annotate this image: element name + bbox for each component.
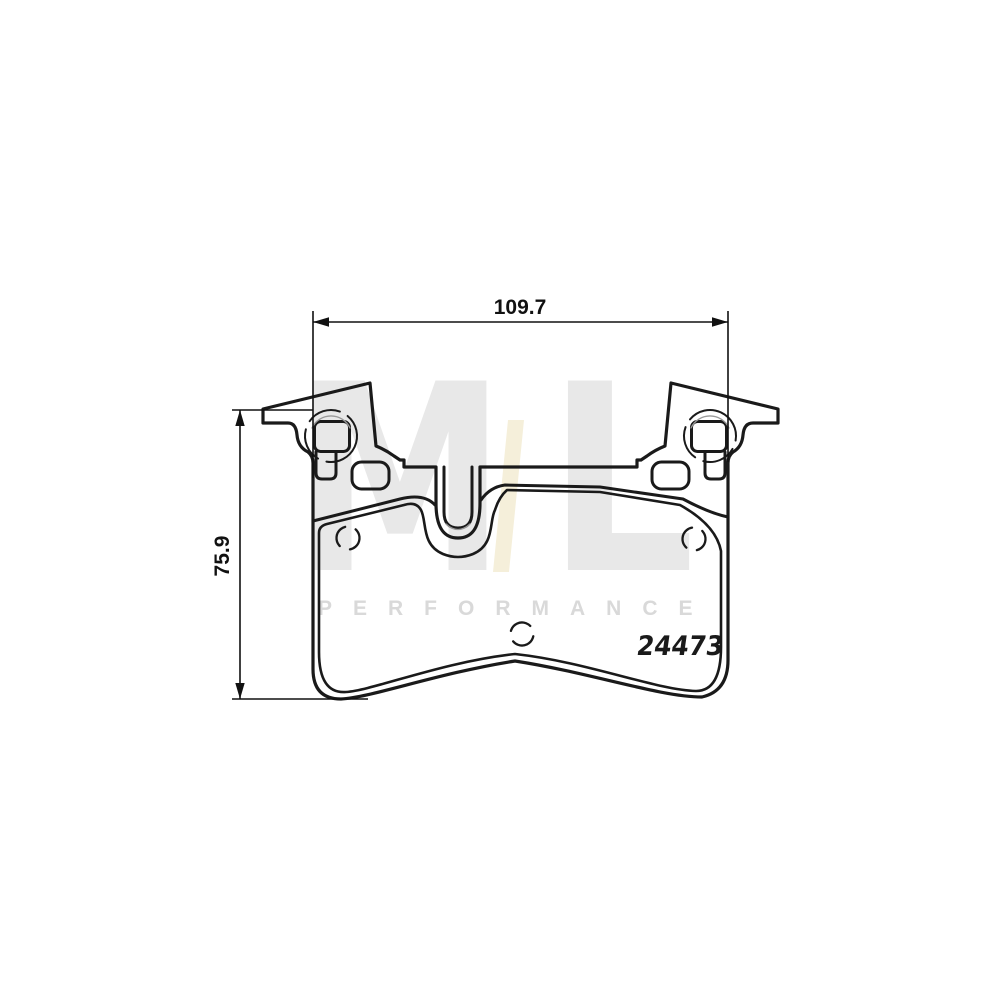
width-arrow-left xyxy=(313,317,329,327)
part-number-label: 24473 xyxy=(635,631,726,662)
width-arrow-right xyxy=(712,317,728,327)
height-arrow-bottom xyxy=(235,683,244,699)
watermark-wordmark: PERFORMANCE xyxy=(318,597,714,620)
product-technical-drawing: M L PERFORMANCE xyxy=(0,0,1000,1000)
right-ear-slot xyxy=(705,452,725,479)
height-dimension-label: 75.9 xyxy=(211,536,234,577)
watermark-letter-m: M xyxy=(294,329,506,632)
watermark-letter-l: L xyxy=(546,329,695,632)
marker-circle-bottom xyxy=(507,619,536,648)
brake-pad-diagram: M L PERFORMANCE xyxy=(0,0,1000,1000)
right-square-hole xyxy=(692,422,727,452)
height-arrow-top xyxy=(235,410,244,426)
width-dimension-label: 109.7 xyxy=(494,296,547,319)
